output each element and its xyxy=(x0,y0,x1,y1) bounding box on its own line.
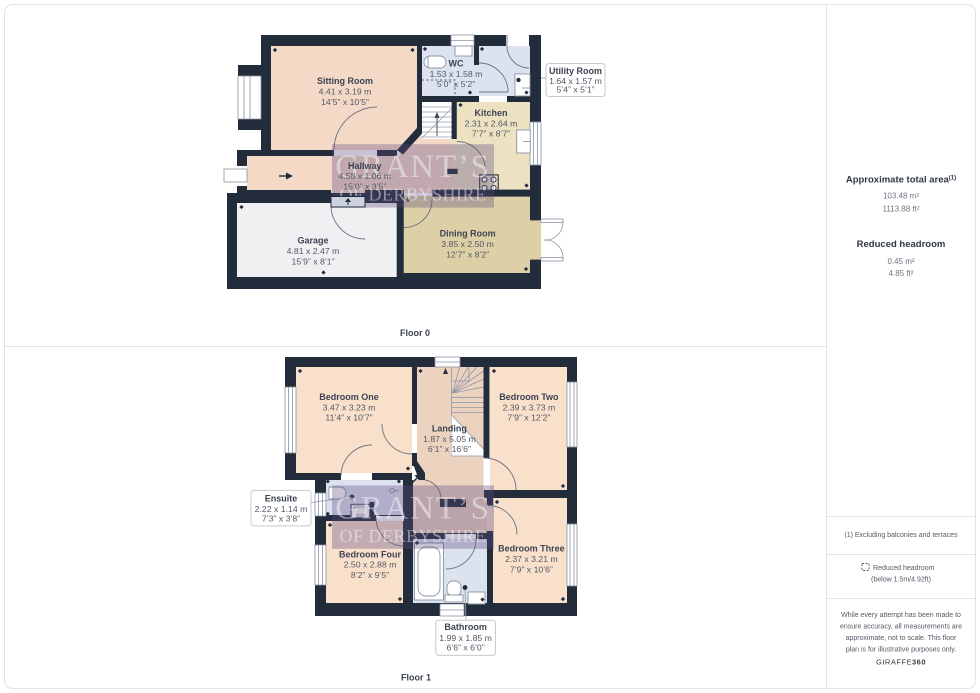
svg-text:5’4” x 5’1”: 5’4” x 5’1” xyxy=(556,85,594,95)
svg-text:6’1” x 16’6”: 6’1” x 16’6” xyxy=(428,444,471,454)
svg-text:Approximate total area(1): Approximate total area(1) xyxy=(846,175,956,186)
svg-text:2.50 x 2.88 m: 2.50 x 2.88 m xyxy=(344,560,397,570)
svg-text:Kitchen: Kitchen xyxy=(474,108,507,118)
svg-text:15’0” x 3’5”: 15’0” x 3’5” xyxy=(343,182,386,192)
svg-text:Reduced headroom: Reduced headroom xyxy=(873,565,935,572)
svg-text:OF DERBYSHIRE: OF DERBYSHIRE xyxy=(339,526,486,546)
svg-text:2.22 x 1.14 m: 2.22 x 1.14 m xyxy=(255,504,308,514)
svg-text:Reduced headroom: Reduced headroom xyxy=(857,239,946,250)
svg-text:5’0” x 5’2”: 5’0” x 5’2” xyxy=(437,79,475,89)
svg-text:6’6” x 6’0”: 6’6” x 6’0” xyxy=(447,642,485,652)
svg-text:4.85 ft²: 4.85 ft² xyxy=(889,269,914,278)
svg-text:GIRAFFE360: GIRAFFE360 xyxy=(876,658,926,667)
svg-text:GRANT’S: GRANT’S xyxy=(335,490,491,526)
svg-text:Ensuite: Ensuite xyxy=(265,493,298,503)
svg-text:4.81 x 2.47 m: 4.81 x 2.47 m xyxy=(287,246,340,256)
svg-text:Bedroom Four: Bedroom Four xyxy=(339,549,401,559)
svg-text:11’4” x 10’7”: 11’4” x 10’7” xyxy=(325,413,372,423)
svg-text:Floor 1: Floor 1 xyxy=(401,673,431,683)
svg-text:Bedroom One: Bedroom One xyxy=(319,392,379,402)
svg-text:4.41 x 3.19 m: 4.41 x 3.19 m xyxy=(319,87,372,97)
svg-text:(1) Excluding balconies and te: (1) Excluding balconies and terraces xyxy=(844,532,958,539)
svg-text:7’9” x 12’2”: 7’9” x 12’2” xyxy=(507,413,550,423)
svg-text:7’9” x 10’6”: 7’9” x 10’6” xyxy=(510,564,553,574)
svg-text:Floor 0: Floor 0 xyxy=(400,328,430,338)
svg-text:2.39 x 3.73 m: 2.39 x 3.73 m xyxy=(503,402,556,412)
svg-text:Sitting Room: Sitting Room xyxy=(317,76,373,86)
svg-text:WC: WC xyxy=(449,58,464,68)
svg-text:3.85 x 2.50 m: 3.85 x 2.50 m xyxy=(441,239,494,249)
svg-text:15’9” x 8’1”: 15’9” x 8’1” xyxy=(292,256,335,266)
svg-text:Landing: Landing xyxy=(432,423,467,433)
svg-text:0.45 m²: 0.45 m² xyxy=(887,257,914,266)
svg-text:(below 1.5m/4.92ft): (below 1.5m/4.92ft) xyxy=(871,577,931,584)
svg-text:2.37 x 3.21 m: 2.37 x 3.21 m xyxy=(505,554,558,564)
svg-text:Utility Room: Utility Room xyxy=(549,66,602,76)
svg-text:While every attempt has been m: While every attempt has been made to xyxy=(841,612,961,619)
svg-text:2.31 x 2.64 m: 2.31 x 2.64 m xyxy=(465,118,518,128)
svg-text:plan is for illustrative purpo: plan is for illustrative purposes only. xyxy=(846,647,956,654)
svg-text:Hallway: Hallway xyxy=(348,161,382,171)
svg-text:approximate, not to scale. Thi: approximate, not to scale. This floor xyxy=(846,635,957,642)
svg-text:1113.88 ft²: 1113.88 ft² xyxy=(882,205,919,214)
svg-text:ensure accuracy, all measureme: ensure accuracy, all measurements are xyxy=(840,624,962,631)
svg-text:Garage: Garage xyxy=(297,236,328,246)
svg-text:1.53 x 1.58 m: 1.53 x 1.58 m xyxy=(430,69,483,79)
svg-text:4.58 x 1.06 m: 4.58 x 1.06 m xyxy=(338,171,391,181)
svg-text:103.48 m²: 103.48 m² xyxy=(883,192,919,201)
svg-text:Bathroom: Bathroom xyxy=(444,622,487,632)
svg-text:Bedroom Three: Bedroom Three xyxy=(498,544,565,554)
svg-text:7’7” x 8’7”: 7’7” x 8’7” xyxy=(472,129,510,139)
svg-text:3.47 x 3.23 m: 3.47 x 3.23 m xyxy=(323,402,376,412)
svg-text:Dining Room: Dining Room xyxy=(440,229,496,239)
svg-text:8’2” x 9’5”: 8’2” x 9’5” xyxy=(351,570,389,580)
svg-text:7’3” x 3’8”: 7’3” x 3’8” xyxy=(262,514,300,524)
svg-text:14’5” x 10’5”: 14’5” x 10’5” xyxy=(321,97,369,107)
svg-text:12’7” x 8’2”: 12’7” x 8’2” xyxy=(446,249,489,259)
svg-text:1.87 x 5.05 m: 1.87 x 5.05 m xyxy=(423,434,476,444)
svg-text:Bedroom Two: Bedroom Two xyxy=(499,392,559,402)
